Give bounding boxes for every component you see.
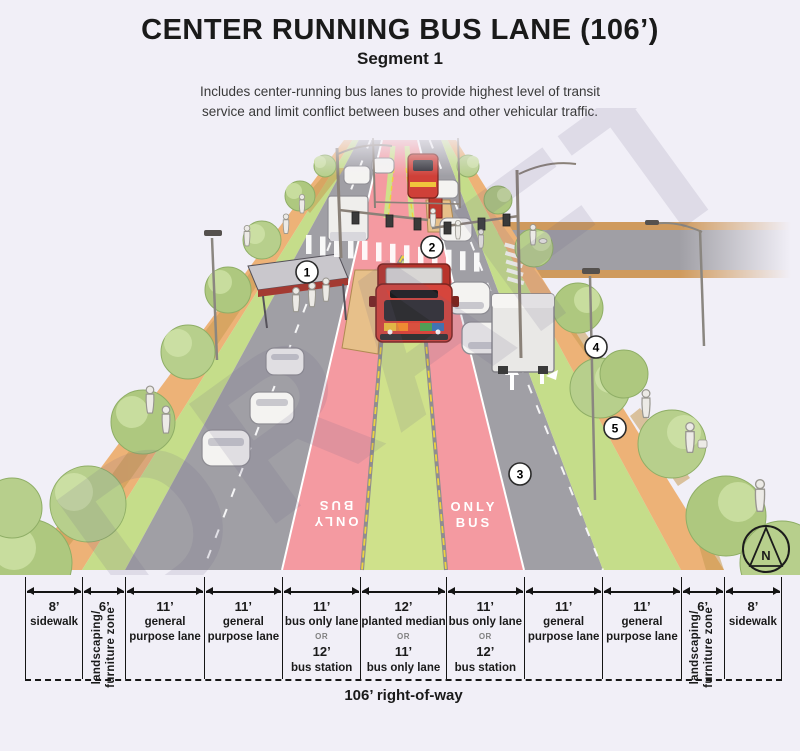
- lane-column-4: 11’generalpurpose lane: [204, 577, 282, 679]
- page-title: CENTER RUNNING BUS LANE (106’): [0, 14, 800, 47]
- road-vanish-fade: [315, 128, 490, 176]
- page: { "header": { "title": "CENTER RUNNING B…: [0, 0, 800, 751]
- lane-label: 8’sidewalk: [725, 597, 781, 631]
- dimension-arrow: [683, 591, 723, 593]
- dimension-arrow: [206, 591, 281, 593]
- lane-label: 11’generalpurpose lane: [603, 597, 680, 646]
- brt-bus: [369, 264, 459, 342]
- callout-1: 1: [296, 261, 318, 283]
- dimension-arrow: [84, 591, 124, 593]
- compass-n-label: N: [761, 548, 770, 563]
- lane-label: 11’bus only laneOR12’bus station: [447, 597, 524, 676]
- dimension-arrow: [448, 591, 523, 593]
- dimension-arrow: [726, 591, 780, 593]
- dimension-arrow: [526, 591, 601, 593]
- callout-5: 5: [604, 417, 626, 439]
- header: CENTER RUNNING BUS LANE (106’) Segment 1…: [0, 14, 800, 123]
- lane-label: 11’bus only laneOR12’bus station: [283, 597, 360, 676]
- lane-column-3: 11’generalpurpose lane: [125, 577, 203, 679]
- description-line-1: Includes center-running bus lanes to pro…: [0, 82, 800, 102]
- svg-text:BUS: BUS: [317, 498, 353, 513]
- dimension-arrow: [127, 591, 202, 593]
- lane-column-1: 8’sidewalk: [25, 577, 82, 679]
- svg-text:ONLY: ONLY: [312, 514, 359, 529]
- street-illustration-svg: ONLY BUS ONLY BUS: [0, 108, 800, 575]
- lane-label: 11’generalpurpose lane: [525, 597, 602, 646]
- lane-label: 12’planted medianOR11’bus only lane: [361, 597, 445, 676]
- cross-section-table: 8’sidewalk6’landscaping/furniture zone11…: [25, 577, 782, 704]
- lane-column-7: 11’bus only laneOR12’bus station: [446, 577, 524, 679]
- svg-text:4: 4: [593, 341, 600, 355]
- svg-text:3: 3: [517, 468, 524, 482]
- svg-text:5: 5: [612, 422, 619, 436]
- box-truck: [492, 294, 554, 374]
- lane-label: 8’sidewalk: [26, 597, 82, 631]
- svg-text:1: 1: [304, 266, 311, 280]
- lane-column-6: 12’planted medianOR11’bus only lane: [360, 577, 445, 679]
- car: [250, 392, 294, 424]
- lane-column-9: 11’generalpurpose lane: [602, 577, 680, 679]
- lane-column-2: 6’landscaping/furniture zone: [82, 577, 125, 679]
- svg-text:2: 2: [429, 241, 436, 255]
- lane-column-8: 11’generalpurpose lane: [524, 577, 602, 679]
- car: [202, 430, 250, 466]
- lane-label: 6’landscaping/furniture zone: [682, 597, 724, 680]
- callout-2: 2: [421, 236, 443, 258]
- right-of-way-label: 106’ right-of-way: [25, 687, 782, 704]
- lane-label: 11’generalpurpose lane: [126, 597, 203, 646]
- dimension-arrow: [604, 591, 679, 593]
- page-subtitle: Segment 1: [0, 49, 800, 69]
- svg-text:ONLY: ONLY: [451, 499, 498, 514]
- dimension-arrow: [284, 591, 359, 593]
- lane-column-11: 8’sidewalk: [724, 577, 782, 679]
- dimension-arrow: [27, 591, 81, 593]
- lane-column-5: 11’bus only laneOR12’bus station: [282, 577, 360, 679]
- svg-text:BUS: BUS: [456, 515, 492, 530]
- dimension-arrow: [362, 591, 444, 593]
- car: [266, 348, 304, 375]
- street-illustration: ONLY BUS ONLY BUS: [0, 108, 800, 575]
- bus-only-marking-right: ONLY BUS: [451, 499, 498, 530]
- lane-columns: 8’sidewalk6’landscaping/furniture zone11…: [25, 577, 782, 681]
- callout-3: 3: [509, 463, 531, 485]
- truck: [328, 196, 368, 241]
- lane-label: 6’landscaping/furniture zone: [83, 597, 125, 680]
- lane-label: 11’generalpurpose lane: [205, 597, 282, 646]
- lane-column-10: 6’landscaping/furniture zone: [681, 577, 724, 679]
- bus-only-marking-left: ONLY BUS: [312, 498, 359, 529]
- callout-4: 4: [585, 336, 607, 358]
